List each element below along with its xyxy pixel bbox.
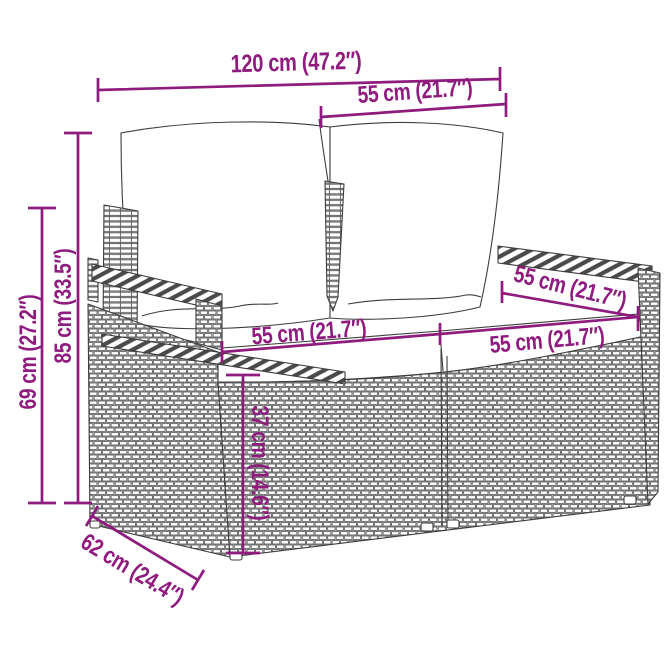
dim-label-arm-height: 69 cm (27.2″) xyxy=(17,295,41,410)
back-cushion-right xyxy=(330,122,503,319)
armrest-left-front-post xyxy=(196,299,222,350)
foot xyxy=(447,520,459,528)
product-dimension-diagram: 120 cm (47.2″) 55 cm (21.7″) 85 cm (33.5… xyxy=(0,0,666,666)
dim-label-overall-height: 85 cm (33.5″) xyxy=(52,249,76,364)
back-cushion-left xyxy=(121,122,330,329)
dim-label-seat-height: 37 cm (14.6″) xyxy=(247,406,271,521)
foot xyxy=(421,523,433,531)
dim-label-total-width: 120 cm (47.2″) xyxy=(230,49,361,78)
foot xyxy=(624,496,636,504)
foot xyxy=(90,521,100,528)
